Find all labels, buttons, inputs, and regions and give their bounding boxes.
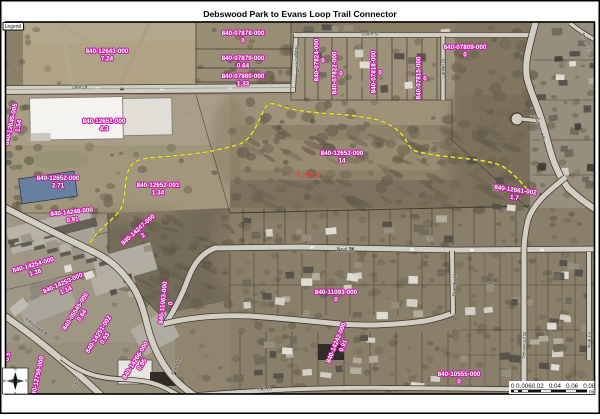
- svg-text:0 0.0060.02 0.04 0.06 0.: 0 0.0060.02 0.04 0.06 0.08: [511, 383, 596, 390]
- svg-text:0: 0: [339, 70, 343, 77]
- svg-text:9,100.2': 9,100.2': [296, 172, 321, 179]
- svg-text:4.3: 4.3: [100, 126, 109, 133]
- svg-text:0.64: 0.64: [237, 63, 250, 70]
- svg-text:Dell Dr: Dell Dr: [72, 85, 88, 91]
- svg-text:840-07824-000: 840-07824-000: [313, 38, 320, 81]
- svg-text:Debswood Dr: Debswood Dr: [521, 331, 527, 359]
- svg-text:840-07878-000: 840-07878-000: [222, 30, 265, 37]
- svg-text:mi: mi: [589, 390, 594, 396]
- svg-text:0: 0: [457, 379, 461, 386]
- svg-text:2.71: 2.71: [52, 183, 65, 190]
- svg-text:1.7: 1.7: [509, 194, 519, 202]
- svg-text:0: 0: [334, 297, 338, 304]
- svg-text:840-12651-000: 840-12651-000: [83, 118, 126, 125]
- svg-text:0.91: 0.91: [66, 216, 79, 224]
- svg-text:Larwin Dr: Larwin Dr: [441, 58, 446, 78]
- svg-text:Neal Cv: Neal Cv: [586, 331, 592, 348]
- svg-text:840-12652-001: 840-12652-001: [137, 182, 180, 189]
- svg-text:840-07880-000: 840-07880-000: [222, 73, 265, 80]
- svg-text:0: 0: [321, 57, 325, 64]
- svg-text:South St: South St: [361, 32, 379, 37]
- svg-text:840-07822-000: 840-07822-000: [331, 51, 338, 94]
- svg-text:Neal St: Neal St: [337, 247, 354, 253]
- svg-text:0: 0: [423, 75, 427, 82]
- svg-text:Todd Ln: Todd Ln: [256, 387, 273, 392]
- svg-text:1.33: 1.33: [237, 81, 250, 88]
- svg-text:7.24: 7.24: [101, 56, 114, 63]
- svg-text:840-07815-000: 840-07815-000: [415, 56, 422, 99]
- svg-text:840-12653-000: 840-12653-000: [321, 150, 364, 157]
- svg-text:14: 14: [338, 158, 346, 165]
- svg-text:840-10555-000: 840-10555-000: [438, 371, 481, 378]
- svg-text:Brantley St: Brantley St: [451, 273, 457, 296]
- svg-text:840-07818-000: 840-07818-000: [370, 50, 377, 93]
- svg-text:840-12652-000: 840-12652-000: [37, 175, 80, 182]
- svg-text:0: 0: [463, 52, 467, 59]
- svg-text:840-12643-000: 840-12643-000: [86, 48, 129, 55]
- svg-text:840-07809-000: 840-07809-000: [444, 44, 487, 51]
- svg-text:840-07879-000: 840-07879-000: [222, 55, 265, 62]
- svg-text:0: 0: [378, 69, 382, 76]
- svg-text:0: 0: [241, 38, 245, 45]
- svg-text:Legend: Legend: [5, 24, 22, 30]
- svg-text:840-11093-000: 840-11093-000: [315, 289, 358, 296]
- svg-text:1.34: 1.34: [152, 190, 165, 197]
- svg-text:Debswood Park to Evans Loop Tr: Debswood Park to Evans Loop Trail Connec…: [203, 9, 397, 19]
